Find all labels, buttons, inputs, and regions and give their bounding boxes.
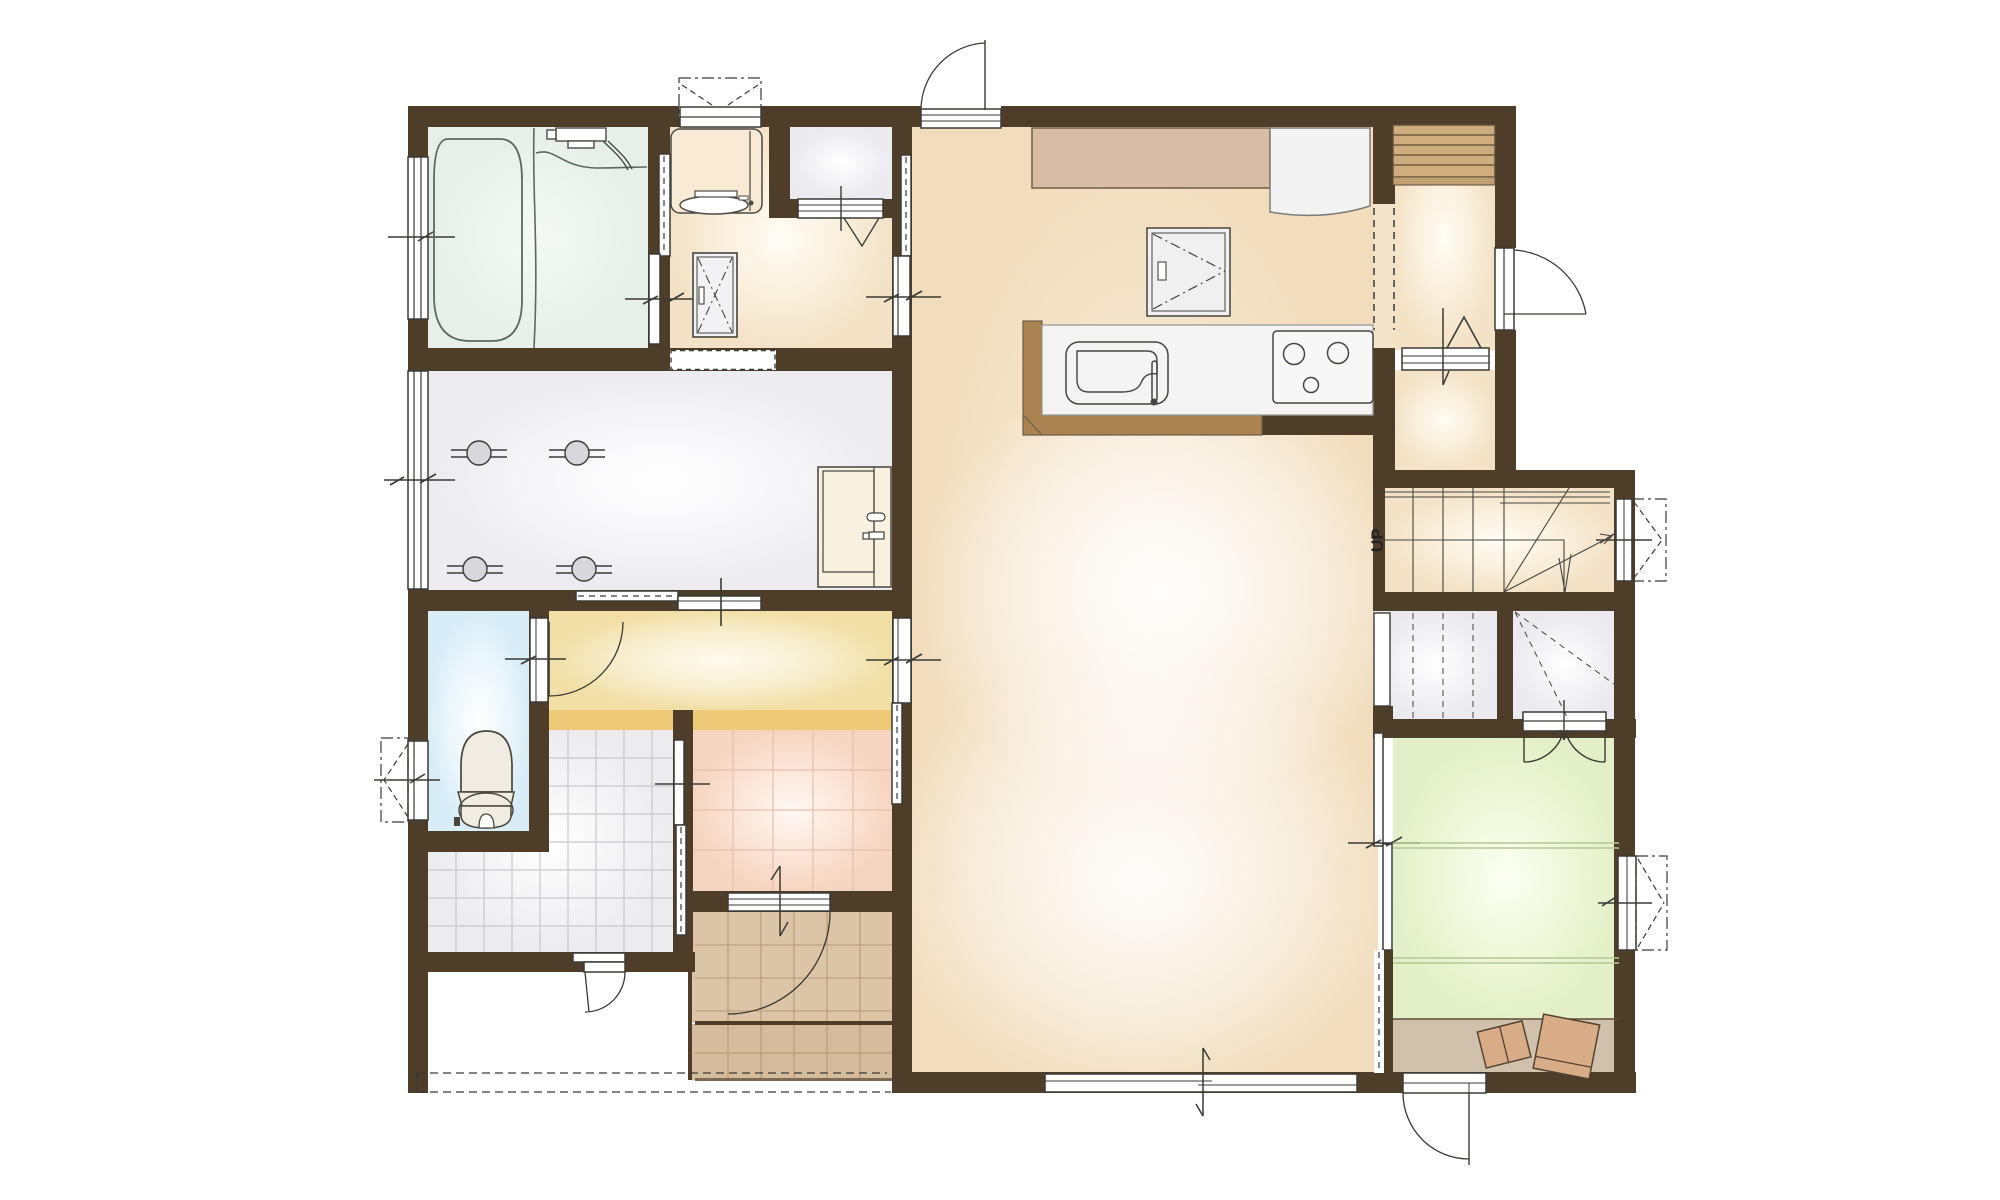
svg-text:UP: UP (1368, 528, 1387, 552)
